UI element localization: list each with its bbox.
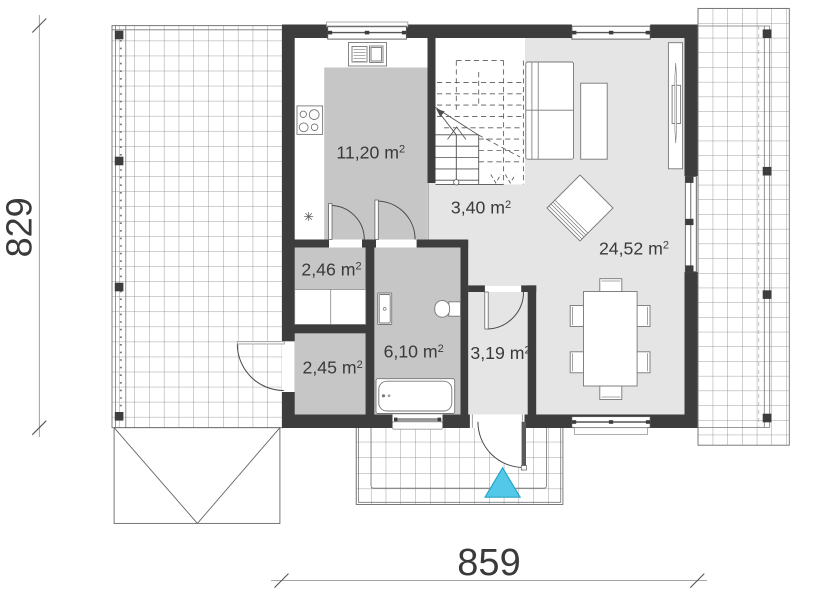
svg-text:2,46 m2: 2,46 m2 bbox=[301, 260, 361, 280]
svg-text:24,52 m2: 24,52 m2 bbox=[599, 238, 669, 258]
svg-text:3,40 m2: 3,40 m2 bbox=[451, 198, 511, 218]
svg-text:2,45 m2: 2,45 m2 bbox=[302, 358, 362, 378]
svg-text:6,10 m2: 6,10 m2 bbox=[384, 342, 444, 362]
svg-text:829: 829 bbox=[0, 197, 40, 257]
svg-text:11,20 m2: 11,20 m2 bbox=[336, 142, 405, 162]
svg-text:3,19 m2: 3,19 m2 bbox=[470, 343, 530, 363]
svg-text:859: 859 bbox=[457, 542, 520, 584]
